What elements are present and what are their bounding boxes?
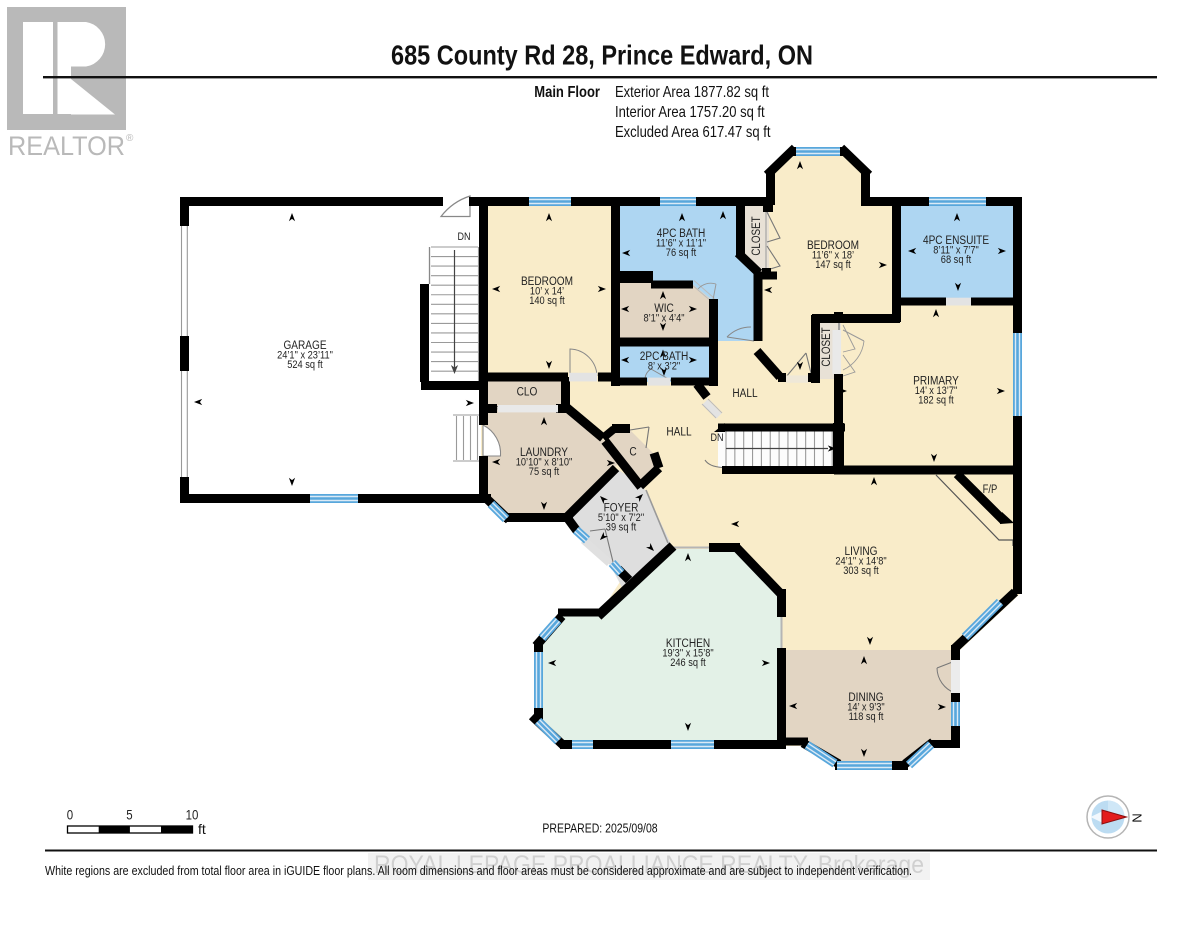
svg-text:147 sq ft: 147 sq ft <box>815 259 851 271</box>
svg-text:CLOSET: CLOSET <box>750 216 763 256</box>
svg-text:0: 0 <box>67 807 73 823</box>
svg-text:C: C <box>629 446 636 459</box>
svg-text:10: 10 <box>186 807 199 823</box>
svg-text:Excluded Area 617.47 sq ft: Excluded Area 617.47 sq ft <box>615 124 770 141</box>
svg-text:75 sq ft: 75 sq ft <box>529 466 559 478</box>
svg-text:8’ x 3’2": 8’ x 3’2" <box>648 361 681 373</box>
svg-text:®: ® <box>126 133 134 144</box>
svg-text:118 sq ft: 118 sq ft <box>849 711 884 723</box>
svg-text:REALTOR: REALTOR <box>8 131 125 161</box>
svg-text:HALL: HALL <box>732 387 757 400</box>
svg-text:HALL: HALL <box>666 426 691 439</box>
svg-text:ft: ft <box>198 821 206 837</box>
svg-text:76 sq ft: 76 sq ft <box>666 247 696 259</box>
svg-text:68 sq ft: 68 sq ft <box>941 254 971 266</box>
svg-text:DN: DN <box>457 231 470 243</box>
svg-text:Interior Area 1757.20 sq ft: Interior Area 1757.20 sq ft <box>615 104 765 121</box>
svg-text:685 County Rd 28, Prince Edwar: 685 County Rd 28, Prince Edward, ON <box>391 41 813 71</box>
svg-text:182 sq ft: 182 sq ft <box>918 395 954 407</box>
svg-text:DN: DN <box>710 432 723 444</box>
svg-text:N: N <box>1130 813 1145 822</box>
svg-text:246 sq ft: 246 sq ft <box>670 657 706 669</box>
svg-text:CLOSET: CLOSET <box>820 327 833 367</box>
svg-text:140 sq ft: 140 sq ft <box>529 295 565 307</box>
svg-text:Main Floor: Main Floor <box>534 84 600 101</box>
svg-text:CLO: CLO <box>517 386 538 399</box>
svg-text:39 sq ft: 39 sq ft <box>606 522 636 534</box>
svg-text:Exterior Area 1877.82 sq ft: Exterior Area 1877.82 sq ft <box>615 84 769 101</box>
svg-text:White regions are excluded fro: White regions are excluded from total fl… <box>45 864 912 878</box>
svg-text:PREPARED: 2025/09/08: PREPARED: 2025/09/08 <box>542 823 657 836</box>
svg-text:8’1" x 4’4": 8’1" x 4’4" <box>643 313 684 325</box>
svg-text:303 sq ft: 303 sq ft <box>843 565 879 577</box>
svg-text:524 sq ft: 524 sq ft <box>287 359 323 371</box>
svg-text:5: 5 <box>126 807 132 823</box>
svg-text:F/P: F/P <box>983 483 998 496</box>
